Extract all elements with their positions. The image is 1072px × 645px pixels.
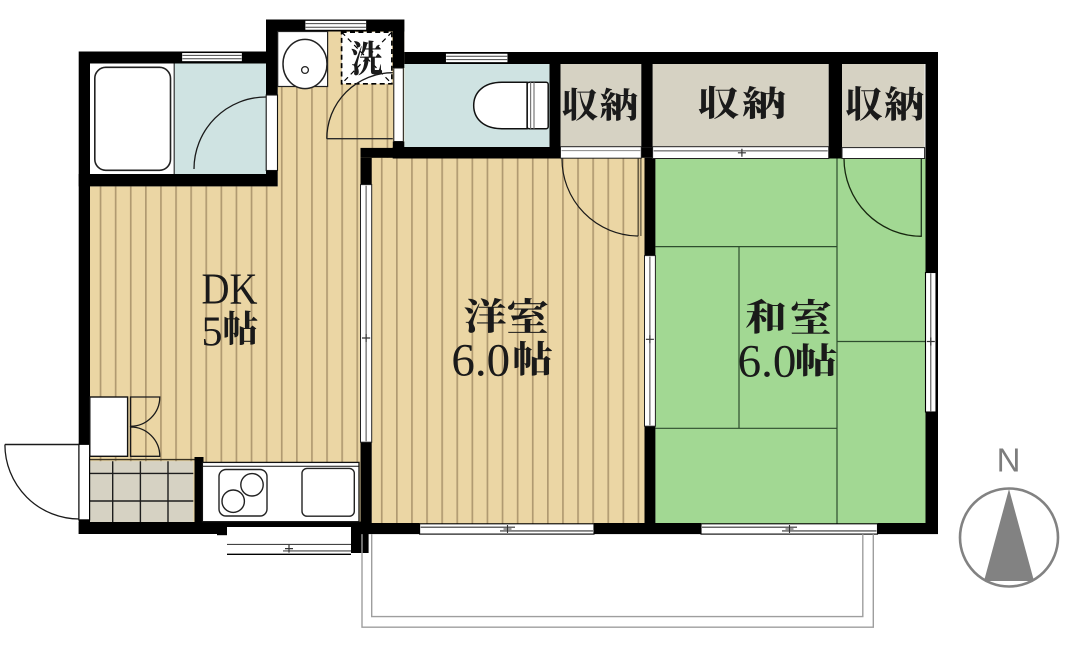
svg-text:N: N (997, 442, 1021, 479)
svg-text:DK: DK (202, 264, 258, 313)
svg-text:6.0: 6.0 (451, 335, 510, 387)
svg-text:5: 5 (202, 309, 223, 355)
svg-text:6.0: 6.0 (738, 335, 797, 387)
